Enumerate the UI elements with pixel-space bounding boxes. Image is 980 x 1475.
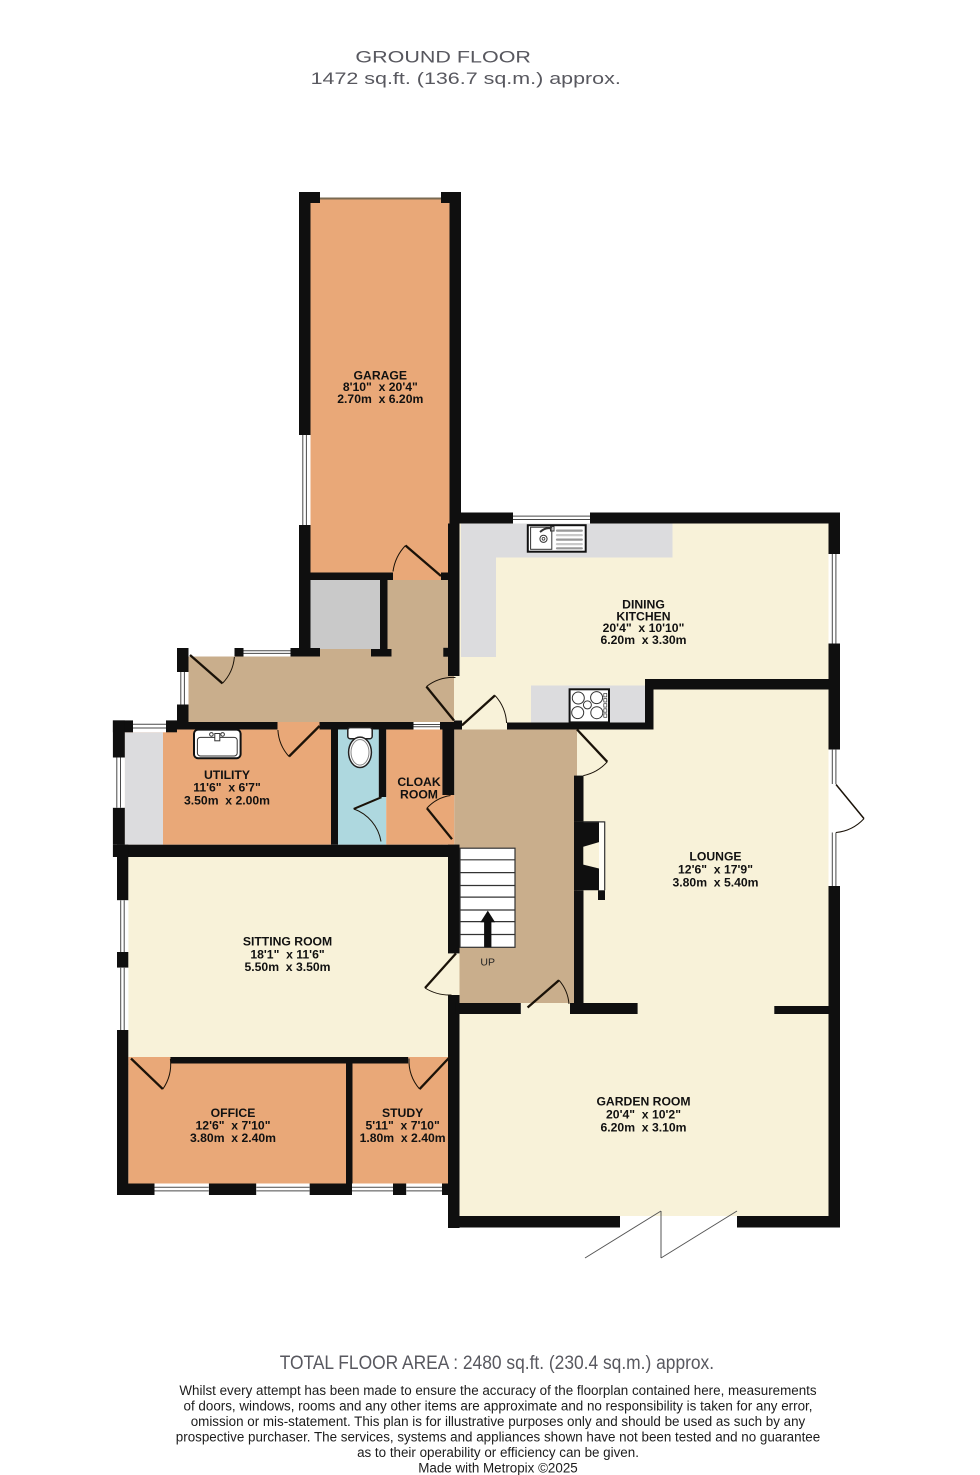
svg-text:UP: UP <box>480 957 495 969</box>
svg-text:GARDEN ROOM20'4" x 10'2"6.20m: GARDEN ROOM20'4" x 10'2"6.20m x 3.10m <box>596 1095 690 1135</box>
svg-text:SITTING ROOM18'1" x 11'6"5.50: SITTING ROOM18'1" x 11'6"5.50m x 3.50m <box>243 935 332 974</box>
svg-text:TOTAL FLOOR AREA : 2480 sq.ft.: TOTAL FLOOR AREA : 2480 sq.ft. (230.4 sq… <box>280 1353 714 1374</box>
svg-text:GROUND FLOOR: GROUND FLOOR <box>355 47 531 66</box>
svg-text:CLOAKROOM: CLOAKROOM <box>397 775 441 802</box>
svg-text:1472 sq.ft. (136.7 sq.m.) appr: 1472 sq.ft. (136.7 sq.m.) approx. <box>311 69 621 88</box>
